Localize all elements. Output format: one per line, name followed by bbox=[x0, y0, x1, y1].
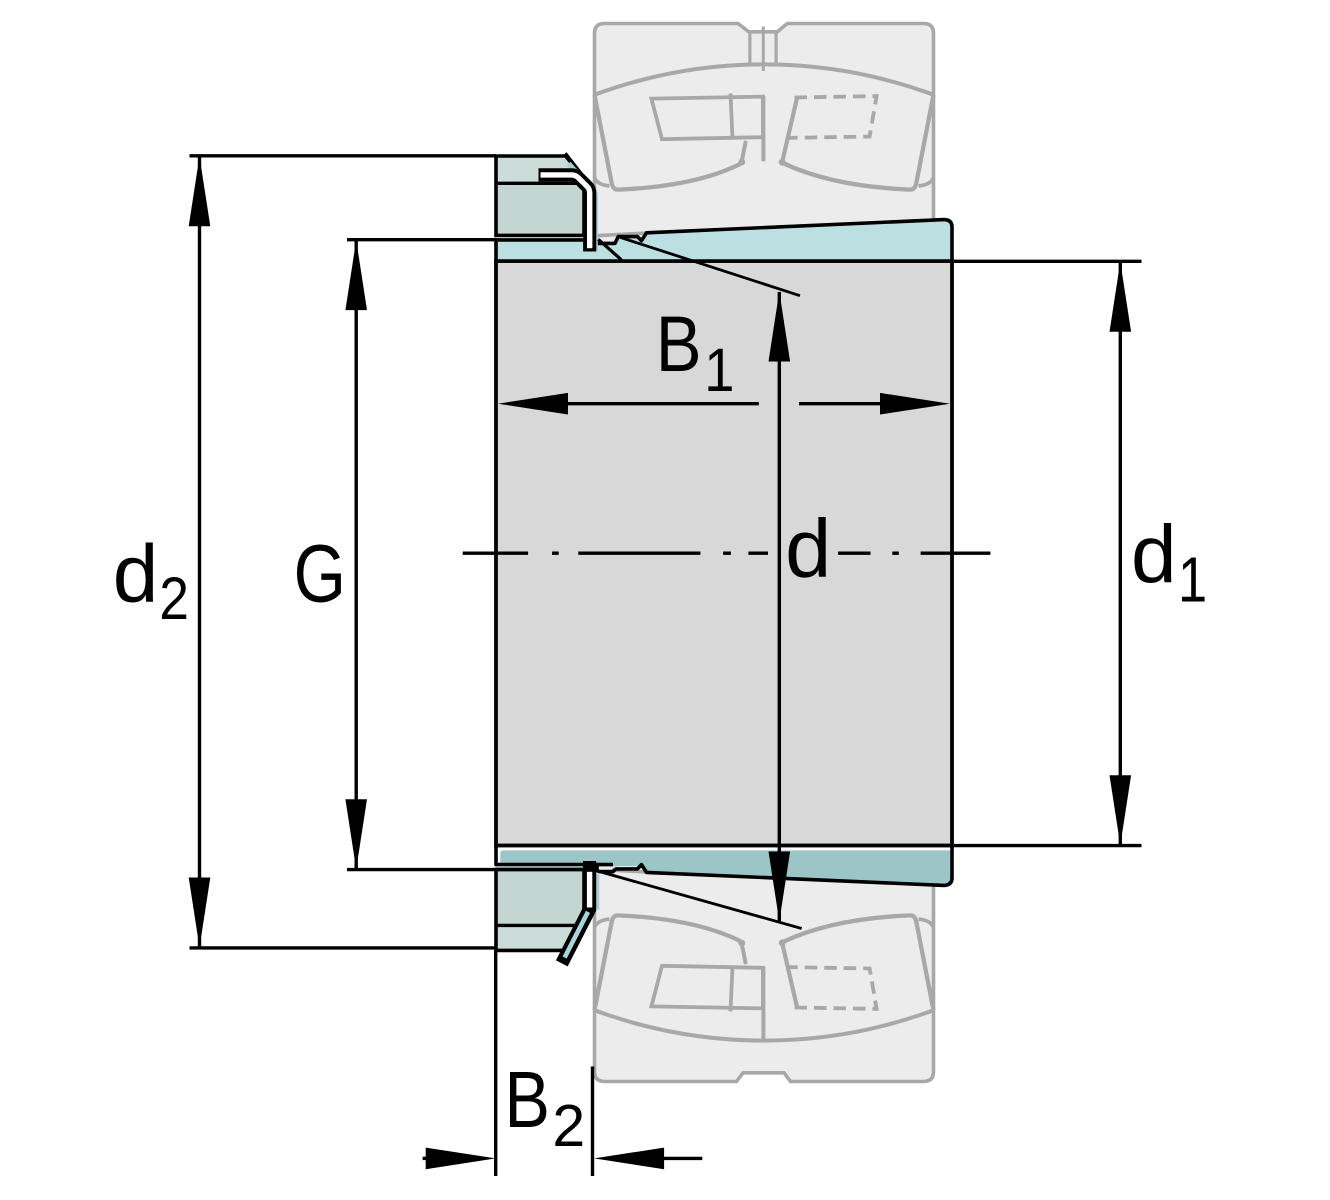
svg-text:1: 1 bbox=[704, 337, 734, 405]
svg-text:d: d bbox=[113, 529, 159, 620]
svg-text:B: B bbox=[656, 300, 702, 389]
svg-text:2: 2 bbox=[552, 1093, 585, 1159]
svg-text:B: B bbox=[504, 1055, 550, 1144]
svg-text:2: 2 bbox=[159, 566, 189, 633]
svg-text:G: G bbox=[294, 527, 346, 619]
svg-text:d: d bbox=[785, 502, 831, 595]
svg-text:d: d bbox=[1131, 509, 1177, 600]
svg-text:1: 1 bbox=[1178, 544, 1207, 615]
